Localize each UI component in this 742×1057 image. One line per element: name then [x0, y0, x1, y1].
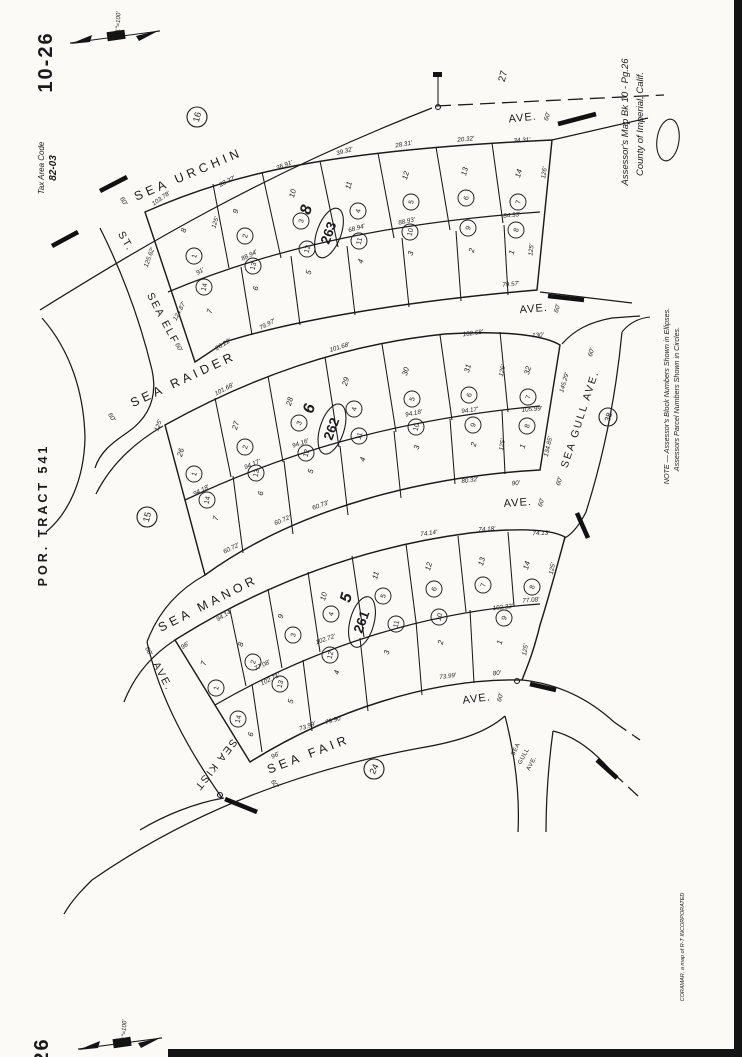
street-width-label: 60' [555, 476, 565, 487]
lot-number: 27 [230, 419, 241, 431]
dim-label: 74.14' [420, 529, 439, 538]
block-ellipse-number: 263 [318, 219, 340, 246]
lot-number: 28 [284, 395, 295, 407]
dim-label: 145.29' [558, 371, 571, 393]
lot-line [347, 246, 355, 315]
dim-label: 80' [492, 670, 502, 678]
street-width-label: 60' [143, 646, 154, 657]
parcel-number: 11 [356, 432, 365, 441]
lot-line [233, 476, 243, 553]
parcel-number: 10 [413, 422, 422, 431]
lot-number: 9 [276, 612, 286, 619]
parcel-number: 14 [204, 495, 213, 504]
lot-number: 7 [199, 659, 209, 666]
lot-number: 8 [236, 640, 246, 647]
ref-circle-24: 24 [364, 759, 384, 779]
dim-label: 20.32' [456, 135, 475, 144]
assessor-map-county: County of Imperial, Calif. [635, 72, 646, 176]
road-edge-sea-gull-stub-west [505, 716, 518, 832]
boundary-mark [433, 72, 442, 77]
block-261-outline [175, 530, 565, 762]
lot-number: 7 [211, 514, 221, 521]
dim-label: 79.90' [324, 715, 343, 727]
street-width-label: 60' [543, 111, 552, 122]
ref-circle-38: 38 [599, 408, 617, 426]
lot-number: 12 [400, 169, 411, 180]
right-border [734, 0, 742, 1057]
dim-label: 125' [527, 243, 535, 256]
assessor-map-sheet: 8 263 8 1 9 2 10 3 11 4 12 5 13 6 14 7 7… [0, 0, 742, 1057]
dim-label: 94.18' [192, 483, 211, 497]
lot-number: 2 [468, 440, 478, 448]
lot-number: 14 [513, 168, 524, 178]
lot-number: 13 [459, 165, 470, 176]
ave-label: AVE. [519, 302, 548, 316]
lot-line [340, 446, 348, 515]
lot-number: 5 [304, 268, 314, 275]
parcel-number: 4 [351, 406, 359, 412]
parcel-number: 7 [480, 582, 488, 588]
por-tract-label: POR. TRACT 541 [36, 444, 50, 587]
map-canvas: 8 263 8 1 9 2 10 3 11 4 12 5 13 6 14 7 7… [0, 0, 742, 1057]
dim-label: 102.32' [492, 603, 514, 613]
road-edge [64, 880, 92, 914]
lot-number: 14 [521, 560, 532, 570]
lot-number: 8 [179, 226, 189, 233]
map-note-line1: NOTE — Assessor's Block Numbers Shown in… [662, 308, 671, 484]
arrowhead-icon [78, 1041, 100, 1050]
lot-number: 5 [286, 697, 296, 704]
empty-ellipse [654, 118, 682, 163]
lot-number: 13 [476, 555, 487, 566]
parcel-number: 2 [242, 233, 250, 239]
sheet-number-bottom: 10-26 [31, 1037, 53, 1057]
dim-label: 94.14' [215, 608, 234, 623]
street-label-sea-kist: SEA KIST [191, 736, 239, 793]
parcel-number: 8 [529, 584, 537, 590]
lot-line [394, 431, 401, 498]
road-edge-sea-fair-south [92, 716, 505, 880]
lot-number: 30 [400, 365, 411, 376]
dim-label: 126' [498, 363, 507, 377]
parcel-number: 9 [465, 225, 473, 231]
dim-label: 74.18' [478, 525, 496, 533]
assessor-map-title: Assessor's Map Bk 10 - Pg.26 [620, 58, 631, 187]
lot-number: 6 [256, 489, 266, 496]
parcel-number: 13 [277, 679, 286, 688]
dim-label: 94.18' [405, 408, 424, 418]
road-edge-sea-gull-stub-east [546, 731, 553, 832]
dim-label: 80.32' [461, 476, 480, 485]
lot-number: 10 [287, 187, 298, 198]
monument-mark [52, 232, 78, 246]
map-note-line2: Assessors Parcel Numbers Shown in Circle… [672, 327, 681, 472]
lot-line [402, 238, 409, 307]
parcel-number: 2 [242, 444, 250, 450]
lot-line [252, 684, 262, 752]
parcel-number: 4 [355, 208, 363, 214]
parcel-number: 5 [408, 199, 416, 205]
lot-line [406, 544, 416, 622]
lot-number: 12 [423, 560, 434, 571]
ave-label: AVE. [503, 496, 532, 510]
parcel-number: 11 [356, 237, 365, 246]
parcel-number: 1 [213, 685, 221, 691]
road-edge [622, 317, 650, 332]
monument-mark [225, 799, 257, 812]
block-261-middle-line [215, 604, 540, 705]
dim-label: 74.13' [532, 530, 550, 538]
lot-line [508, 532, 514, 606]
lot-line [456, 231, 461, 301]
scale-bar: 1"=100' [70, 11, 160, 44]
lot-number: 29 [340, 375, 351, 387]
road-network [40, 72, 664, 914]
dim-label: 91' [195, 266, 206, 277]
lot-number: 3 [382, 648, 392, 655]
parcel-number: 9 [501, 615, 509, 621]
parcel-number: 1 [191, 471, 199, 477]
dim-label: 125' [521, 643, 530, 657]
ref-number: 16 [191, 111, 203, 123]
parcel-number: 12 [303, 448, 312, 457]
dim-label: 130' [532, 332, 545, 340]
dim-label: 102.72' [315, 633, 337, 647]
lot-line [291, 256, 300, 325]
lot-number: 11 [370, 570, 381, 580]
bottom-scale-bar: 10-26 1"=100' [31, 1019, 162, 1057]
street-width-label: 60' [537, 497, 546, 508]
dim-label: 73.99' [439, 672, 458, 681]
parcel-number: 6 [431, 586, 439, 592]
lot-number: 2 [466, 246, 476, 254]
street-label-sea-gull-small: SEA [510, 742, 522, 757]
lot-line [492, 143, 503, 223]
lot-number: 2 [435, 638, 445, 646]
parcel-number: 4 [328, 611, 336, 617]
road-corner [42, 318, 85, 438]
dim-label: 125' [153, 418, 164, 432]
parcel-number: 8 [524, 423, 532, 429]
monument-mark [597, 760, 617, 778]
lot-number: 4 [332, 669, 342, 675]
block-ellipse-263: 263 [309, 204, 349, 261]
ave-label: AVE. [508, 111, 537, 126]
lot-number: 4 [356, 258, 366, 264]
tax-area-code: 82-03 [48, 155, 59, 181]
parcel-number: 14 [201, 282, 210, 291]
lot-line [303, 660, 312, 731]
ref-number: 24 [367, 762, 380, 775]
dim-label: 125' [548, 561, 557, 575]
ref-circle-15: 15 [137, 507, 157, 527]
lot-line [436, 147, 450, 230]
road-edge [40, 108, 432, 310]
lot-number: 26 [175, 446, 186, 458]
block-261: 5 261 [175, 530, 565, 762]
street-label-sea-raider: SEA RAIDER [128, 349, 238, 410]
parcel-number: 1 [191, 253, 199, 259]
parcel-number: 3 [290, 632, 298, 638]
road-edge [140, 798, 224, 830]
parcel-number: 6 [466, 392, 474, 398]
dim-label: 60.73' [311, 499, 330, 512]
block-ellipse-number: 262 [321, 416, 343, 442]
street-width-label: 60' [496, 692, 505, 703]
lot-number: 3 [406, 249, 416, 256]
parcel-number: 5 [380, 593, 388, 599]
lot-number: 1 [507, 249, 517, 255]
monument-mark [558, 114, 596, 124]
parcel-number: 12 [327, 650, 336, 659]
parcel-number: 13 [250, 261, 259, 270]
street-label-sea-gull-small: AVE. [526, 755, 538, 771]
ave-label: AVE. [462, 691, 492, 706]
dim-label: 34.31' [513, 137, 531, 145]
dim-label: 28.31' [394, 139, 414, 149]
lot-number: 7 [205, 307, 215, 314]
street-width-label: 60' [553, 303, 562, 314]
monument-circle [436, 105, 441, 110]
street-width-label: 60' [173, 342, 184, 353]
block-number: 6 [300, 402, 319, 415]
dim-label: 96' [180, 640, 191, 651]
dim-label: 125.62' [143, 246, 157, 268]
lot-number: 6 [246, 730, 256, 737]
lot-line [360, 638, 368, 711]
parcel-number: 7 [525, 394, 533, 400]
lot-number: 5 [306, 467, 316, 474]
ref-number: 15 [141, 511, 153, 523]
parcel-number: 9 [470, 422, 478, 428]
parcel-number: 8 [513, 227, 521, 233]
sheet-number: 10-26 [35, 31, 57, 92]
lot-number: 10 [318, 590, 329, 601]
block-number: 5 [337, 590, 356, 604]
lot-line [382, 344, 396, 432]
street-label-st: ST. [115, 229, 136, 253]
street-width-label: 60' [587, 347, 597, 358]
block-number: 8 [297, 203, 316, 216]
road-edge [562, 316, 640, 344]
dim-label: 77.08' [253, 658, 272, 672]
arrowhead-icon [136, 30, 160, 41]
dim-label: 77.08' [522, 596, 540, 605]
lot-number: 6 [251, 284, 261, 291]
dim-label: 125' [498, 438, 507, 452]
parcel-number: 10 [407, 227, 416, 236]
lot-number: 9 [231, 207, 241, 214]
road-corner [46, 438, 85, 532]
dim-label: 102.68' [462, 329, 484, 339]
lot-line [458, 536, 466, 612]
arrowhead-icon [138, 1037, 162, 1048]
dim-label: 36.91' [275, 159, 294, 172]
dim-label: 94.17' [243, 458, 262, 471]
parcel-number: 3 [298, 218, 306, 224]
dim-label: 79.57' [502, 280, 520, 289]
block-262-middle-line [185, 406, 540, 500]
street-label-sea-manor: SEA MANOR [156, 572, 261, 635]
block-263-middle-line [168, 212, 540, 292]
street-width-label: 60' [118, 196, 129, 207]
scale-label: 1"=100' [115, 11, 123, 33]
parcel-number: 6 [463, 195, 471, 201]
lot-number: 31 [462, 363, 473, 373]
dim-label: 60.72' [273, 514, 292, 527]
monument-mark [530, 684, 556, 690]
lot-line [470, 610, 474, 683]
lot-number: 1 [518, 443, 528, 449]
arrowhead-icon [70, 35, 92, 44]
parcel-number: 7 [515, 199, 523, 205]
road-corner [96, 426, 163, 494]
parcel-number: 14 [235, 714, 244, 723]
credit-line: CORAMAR, a map of R-T INCORPORATED [680, 893, 686, 1002]
lot-number: 11 [343, 180, 354, 190]
dim-label: 105.99' [521, 405, 543, 414]
dim-label: 84.33' [503, 211, 521, 220]
lot-line [416, 621, 422, 695]
street-label-sea-kist-ave: AVE. [150, 660, 175, 693]
parcel-number: 3 [296, 420, 304, 426]
bottom-border [168, 1049, 742, 1057]
lot-number: 3 [412, 443, 422, 450]
lot-line [241, 267, 252, 335]
ref-number: 38 [603, 411, 614, 423]
ref-number-27: 27 [497, 69, 511, 83]
lot-line [450, 419, 455, 484]
lot-line [268, 589, 282, 668]
lot-line [215, 398, 231, 477]
lot-line [440, 335, 452, 420]
road-edge-dashed [614, 722, 640, 740]
parcel-number: 5 [409, 396, 417, 402]
dim-label: 68.94' [347, 223, 366, 235]
parcel-number: 13 [253, 468, 262, 477]
dim-label: 90' [511, 480, 521, 488]
lot-number: 32 [522, 364, 533, 375]
lot-line [378, 153, 394, 238]
lot-line [262, 172, 281, 258]
dim-label: 94.16' [291, 437, 310, 449]
ref-circle-16: 16 [187, 107, 207, 127]
block-ellipse-number: 261 [351, 608, 373, 635]
road-corner [95, 370, 154, 468]
dim-label: 28.32' [217, 174, 237, 189]
scale-label: 1"=100' [121, 1019, 129, 1041]
street-width-label: 60' [106, 412, 117, 423]
parcel-number: 10 [436, 612, 445, 621]
lot-line [268, 376, 283, 462]
lot-number: 1 [495, 639, 505, 645]
monument-mark [100, 177, 127, 191]
tax-area-code-label: Tax Area Code [37, 141, 46, 194]
lot-number: 4 [358, 456, 368, 462]
